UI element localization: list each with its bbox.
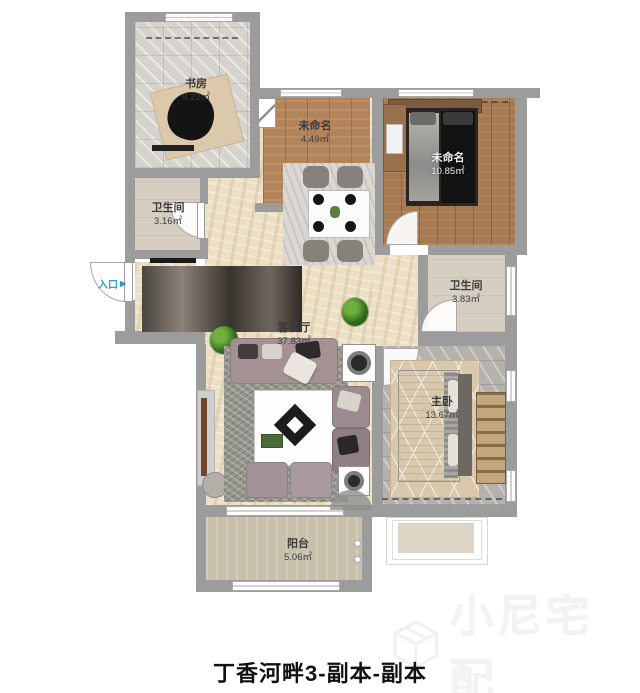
master-pillow (448, 380, 458, 412)
armchair-pillow (337, 434, 360, 455)
plant-icon (342, 298, 368, 326)
wall-entry-step (115, 331, 205, 344)
wall-bedroom2-bottom-b (428, 245, 517, 255)
wall-master-bottom (372, 505, 517, 517)
floorplan-canvas: 书房 9.22㎡ 未命名 4.49㎡ 未命名 10.85㎡ 卫生间 3.16㎡ … (0, 0, 640, 693)
plate (313, 221, 324, 232)
entry-label: 入口 ▶ (98, 276, 126, 291)
study-shelf (152, 145, 194, 151)
kitchen-door-icon (258, 98, 276, 128)
table-centerpiece (330, 206, 340, 218)
dining-chair (303, 240, 329, 262)
hallway-floor[interactable] (372, 255, 418, 346)
bedroom2-pillow (410, 112, 436, 125)
master-wardrobe (476, 392, 506, 484)
wall-left-upper (125, 178, 135, 263)
curtain-mark-master (382, 498, 502, 500)
wall-bedroom2-right (515, 97, 527, 255)
window-bedroom2-top (398, 89, 474, 97)
bath1-door-panel (197, 202, 205, 239)
washing-machine (342, 344, 376, 382)
plate (345, 221, 356, 232)
sofa-pillow (238, 344, 258, 359)
master-pillow (448, 434, 458, 466)
plate (313, 194, 324, 205)
dining-chair (337, 240, 363, 262)
window-study-top (165, 13, 233, 22)
sliding-door-balcony (226, 506, 344, 516)
window-master-right-1 (506, 370, 516, 402)
room-balcony-floor[interactable] (206, 517, 362, 580)
plate (345, 194, 356, 205)
wall-bath1-right-b (200, 238, 208, 255)
wall-master-top (418, 332, 517, 346)
wall-balcony-right (362, 505, 372, 592)
balcony-dot (354, 556, 361, 563)
window-master-right-2 (506, 470, 516, 502)
master-headboard (458, 374, 472, 476)
balcony-dot (354, 540, 361, 547)
window-balcony-bottom (232, 581, 340, 591)
wall-kitchen-bottom-stub (255, 203, 283, 212)
ottoman (290, 462, 332, 498)
wall-bath1-right-a (200, 178, 208, 204)
window-bath2-right (506, 266, 516, 316)
bedroom2-pillow (443, 112, 473, 125)
bedroom2-blanket (409, 113, 439, 201)
entry-rug (142, 266, 302, 332)
wall-study-left (125, 12, 135, 178)
bedroom2-vanity-screen (386, 124, 403, 154)
plan-title: 丁香河畔3-副本-副本 (0, 656, 640, 688)
entry-arrow-icon: ▶ (120, 279, 126, 288)
wall-study-bottom (125, 168, 260, 178)
curtain-mark-study (146, 37, 238, 39)
entry-console (150, 258, 196, 263)
window-kitchen-top (280, 89, 342, 97)
ac-platform-ledge (398, 523, 474, 553)
ottoman (246, 462, 288, 498)
tv-icon (201, 398, 207, 476)
sofa-pillow (262, 344, 282, 359)
dining-chair (303, 166, 329, 188)
dining-chair (337, 166, 363, 188)
table-books (261, 434, 283, 448)
